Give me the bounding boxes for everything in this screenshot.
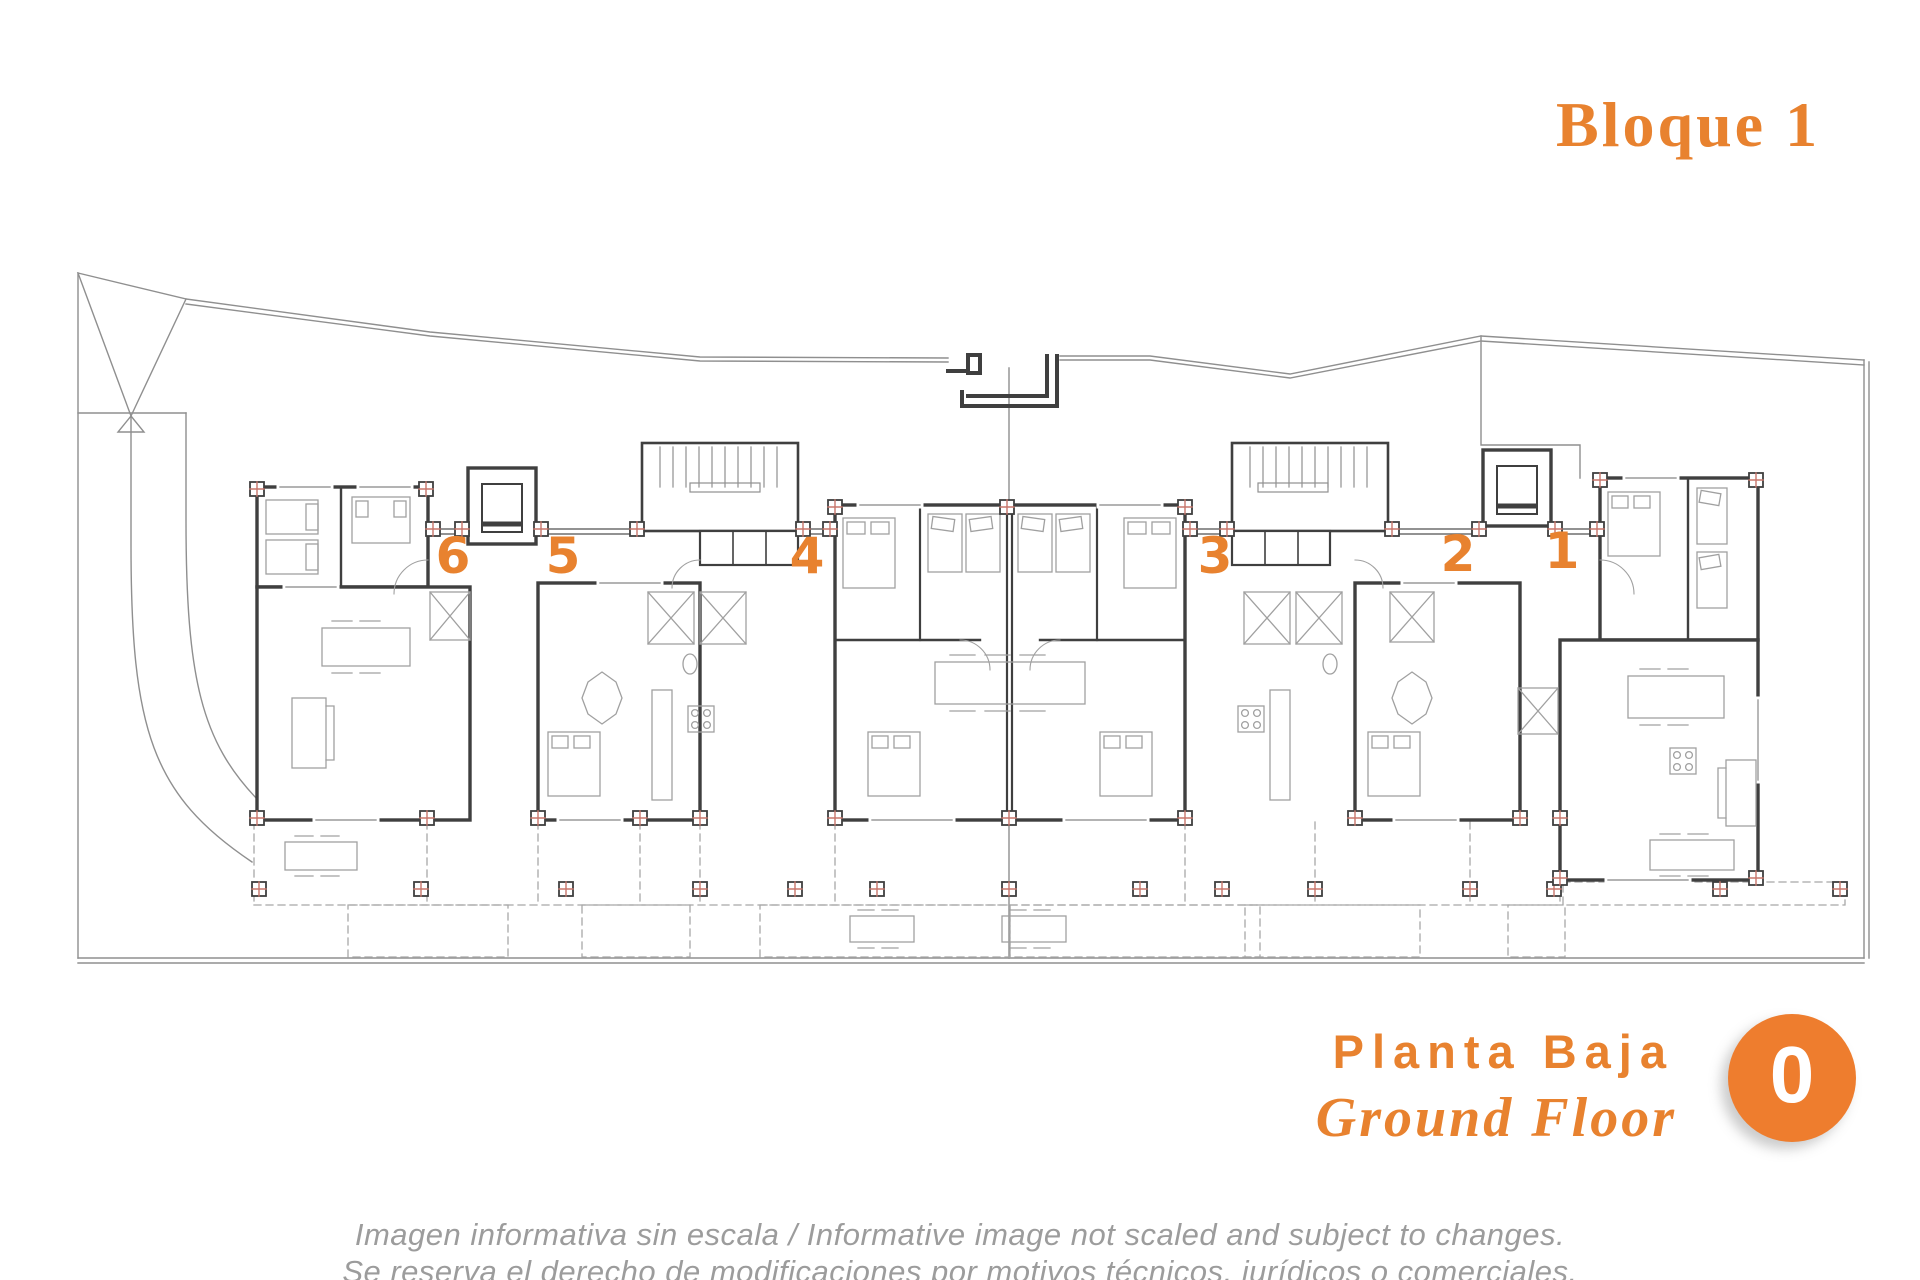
column-marker [633, 811, 647, 825]
column-marker [1178, 500, 1192, 514]
column-marker [1000, 500, 1014, 514]
column-marker [693, 882, 707, 896]
disclaimer-line-1: Imagen informativa sin escala / Informat… [0, 1216, 1920, 1253]
disclaimer-line-2: Se reserva el derecho de modificaciones … [0, 1253, 1920, 1280]
column-marker [1713, 882, 1727, 896]
column-marker [823, 522, 837, 536]
disclaimer: Imagen informativa sin escala / Informat… [0, 1216, 1920, 1280]
column-marker [870, 882, 884, 896]
column-marker [828, 811, 842, 825]
floor-badge-number: 0 [1770, 1029, 1815, 1121]
unit-number-label: 5 [546, 527, 581, 585]
column-marker [252, 882, 266, 896]
column-marker [1002, 882, 1016, 896]
unit-number-label: 6 [436, 527, 471, 585]
column-marker [630, 522, 644, 536]
unit-number-label: 2 [1441, 525, 1476, 583]
column-marker [1348, 811, 1362, 825]
unit-number-label: 3 [1198, 527, 1233, 585]
column-marker [1553, 871, 1567, 885]
column-marker [1463, 882, 1477, 896]
column-marker [1593, 473, 1607, 487]
floor-title-en: Ground Floor [1316, 1086, 1677, 1150]
unit-number-label: 1 [1545, 522, 1580, 580]
column-marker [1513, 811, 1527, 825]
column-marker [1178, 811, 1192, 825]
column-marker [1215, 882, 1229, 896]
entrance-canopy [948, 355, 1057, 406]
column-marker [1833, 882, 1847, 896]
column-marker [1553, 811, 1567, 825]
column-marker [420, 811, 434, 825]
column-marker [531, 811, 545, 825]
column-marker [693, 811, 707, 825]
page: Bloque 1 [0, 0, 1920, 1280]
floor-title-es: Planta Baja [1333, 1024, 1674, 1079]
column-marker [414, 882, 428, 896]
column-marker [788, 882, 802, 896]
floor-badge: 0 [1728, 1014, 1856, 1142]
unit-number-label: 4 [790, 527, 825, 585]
column-marker [1590, 522, 1604, 536]
column-marker [828, 500, 842, 514]
column-marker [1133, 882, 1147, 896]
column-marker [419, 482, 433, 496]
column-marker [250, 811, 264, 825]
column-marker [1749, 871, 1763, 885]
column-marker [1385, 522, 1399, 536]
column-marker [250, 482, 264, 496]
column-marker [1183, 522, 1197, 536]
column-marker [559, 882, 573, 896]
column-marker [1002, 811, 1016, 825]
column-marker [1308, 882, 1322, 896]
column-marker [1749, 473, 1763, 487]
